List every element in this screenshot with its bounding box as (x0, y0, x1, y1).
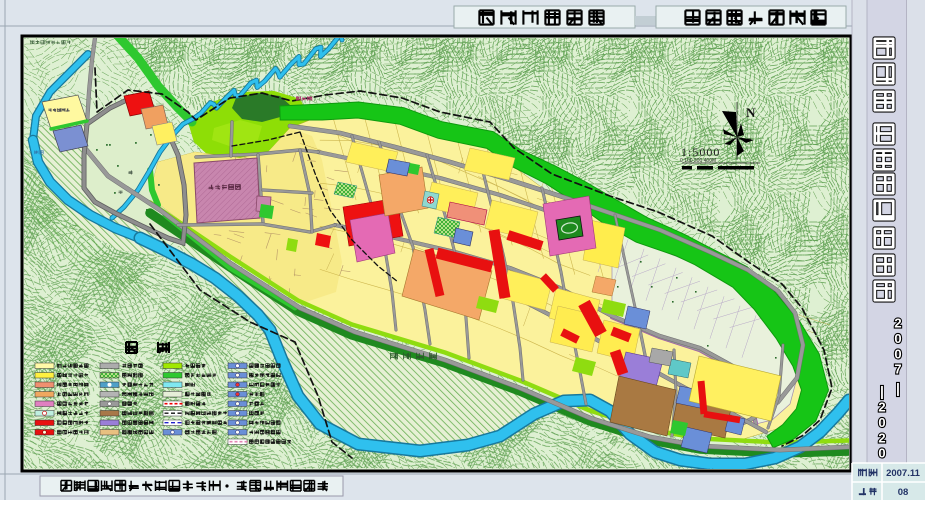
svg-text:2: 2 (878, 430, 885, 445)
svg-text:1:5000: 1:5000 (681, 145, 720, 159)
svg-text:08: 08 (898, 487, 909, 498)
svg-text:7: 7 (894, 362, 901, 377)
svg-text:2: 2 (878, 400, 885, 415)
svg-text:0: 0 (894, 346, 901, 361)
svg-text:N: N (746, 105, 756, 120)
svg-text:2007.11: 2007.11 (886, 468, 921, 479)
svg-text:0: 0 (878, 446, 885, 461)
svg-text:0 100 200 400M: 0 100 200 400M (680, 158, 716, 164)
svg-text:0: 0 (894, 331, 901, 346)
svg-text:|: | (896, 380, 900, 396)
svg-text:|: | (880, 383, 884, 399)
svg-text:2: 2 (894, 316, 901, 331)
svg-text:0: 0 (878, 415, 885, 430)
